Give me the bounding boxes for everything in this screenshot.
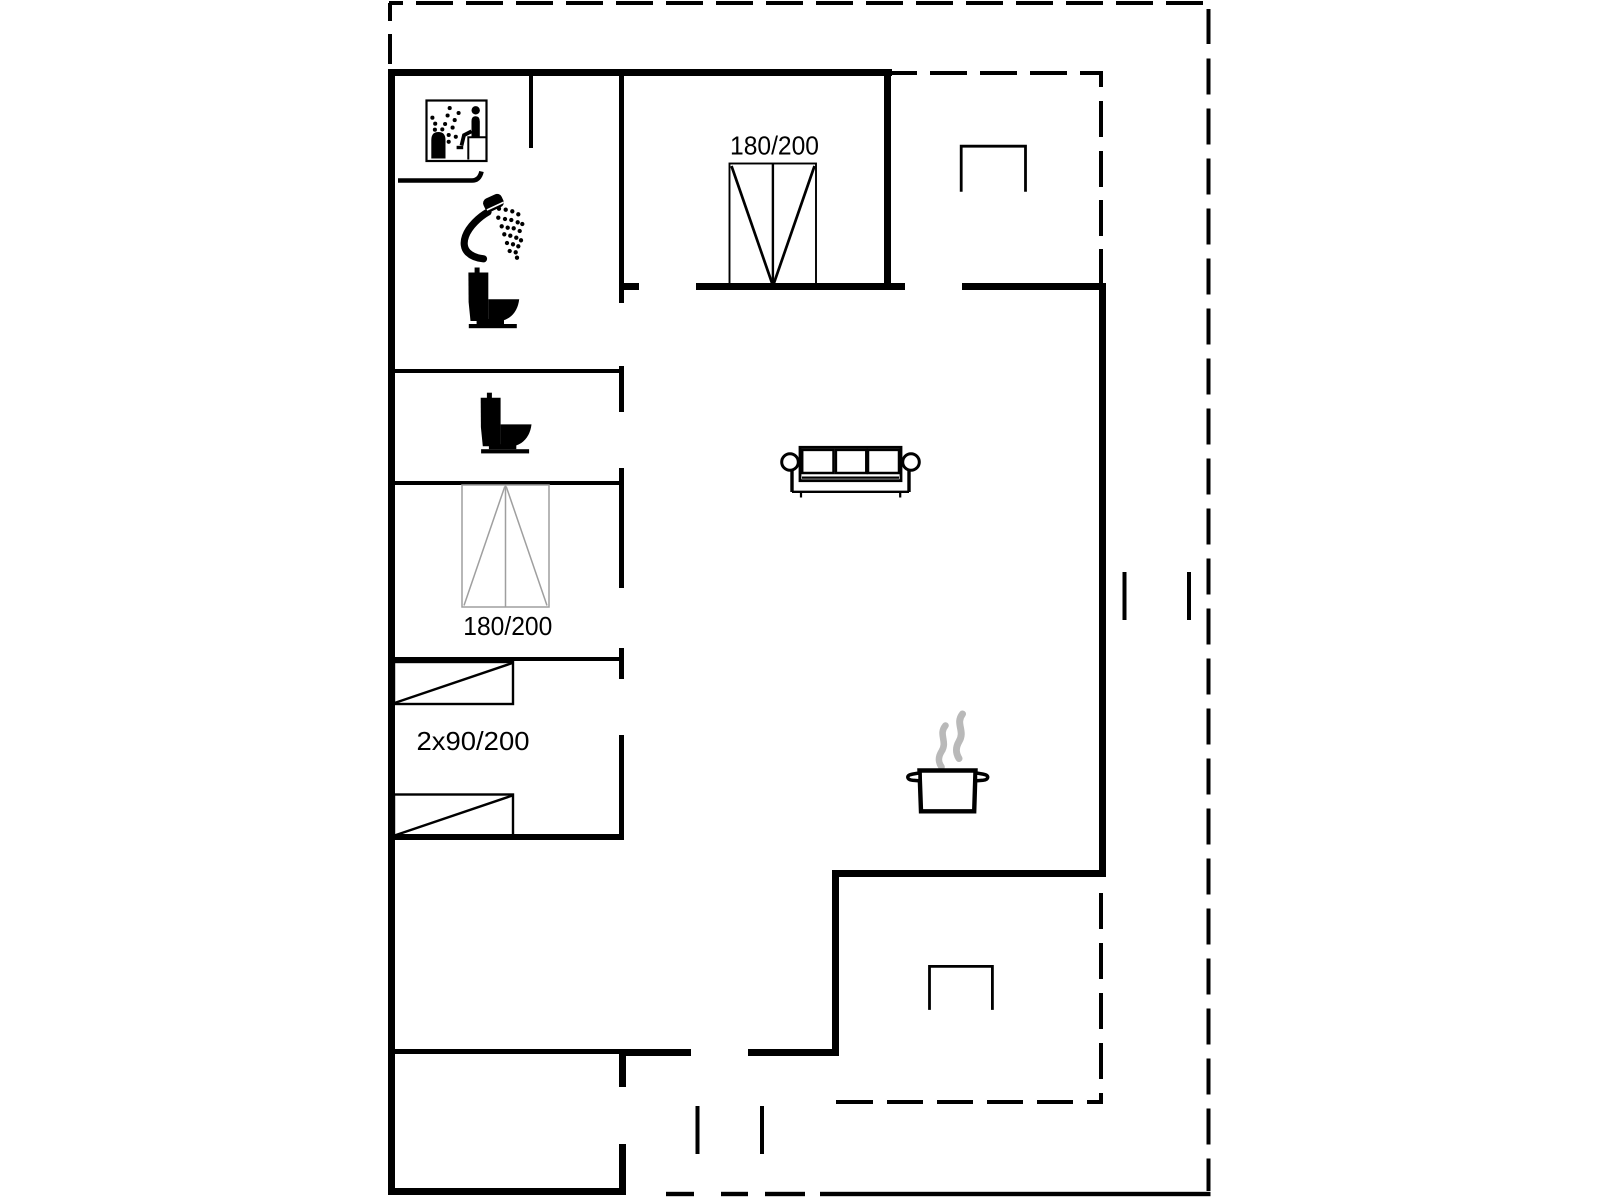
svg-text:2x90/200: 2x90/200	[417, 726, 530, 756]
svg-text:180/200: 180/200	[463, 611, 552, 641]
svg-text:180/200: 180/200	[730, 131, 819, 161]
